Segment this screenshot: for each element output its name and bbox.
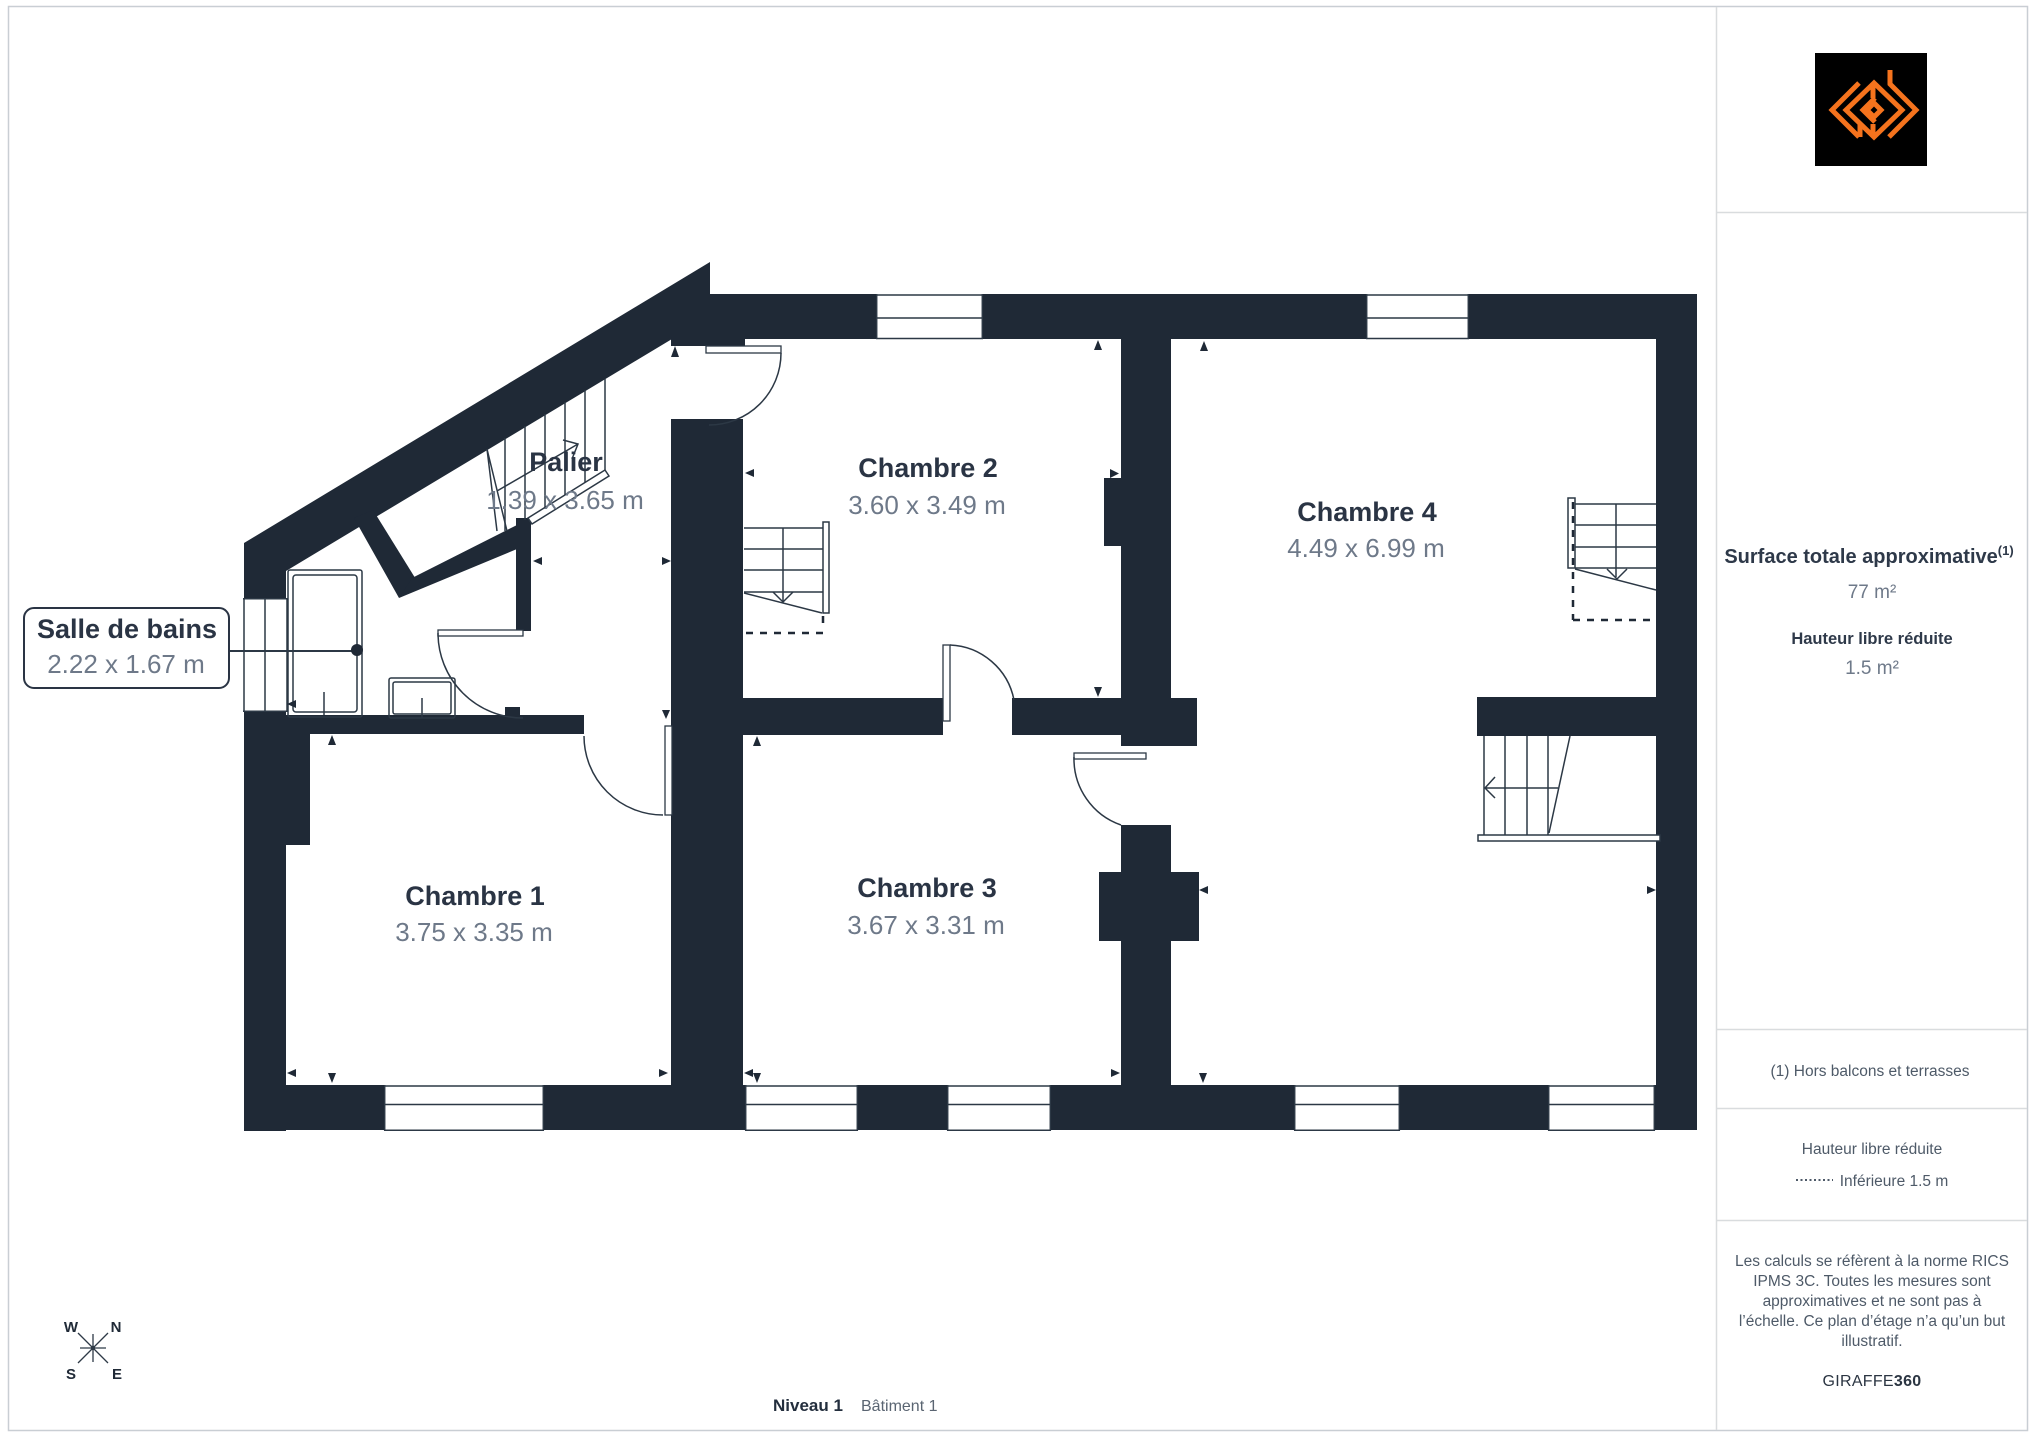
svg-text:4.49 x 6.99 m: 4.49 x 6.99 m (1287, 533, 1445, 563)
svg-text:2.22 x 1.67 m: 2.22 x 1.67 m (47, 649, 205, 679)
svg-text:3.67 x 3.31 m: 3.67 x 3.31 m (847, 910, 1005, 940)
svg-text:1.5 m²: 1.5 m² (1845, 658, 1899, 679)
svg-text:S: S (66, 1366, 76, 1383)
svg-text:Chambre 1: Chambre 1 (405, 881, 545, 911)
svg-text:(1) Hors balcons et terrasses: (1) Hors balcons et terrasses (1771, 1063, 1970, 1080)
svg-text:Les calculs se réfèrent à la n: Les calculs se réfèrent à la norme RICS (1735, 1253, 2009, 1270)
svg-text:Chambre 4: Chambre 4 (1297, 497, 1437, 527)
svg-text:3.75 x 3.35 m: 3.75 x 3.35 m (395, 917, 553, 947)
svg-text:GIRAFFE360: GIRAFFE360 (1822, 1373, 1921, 1390)
svg-text:Bâtiment 1: Bâtiment 1 (861, 1398, 938, 1415)
svg-text:Chambre 2: Chambre 2 (858, 453, 998, 483)
svg-text:Inférieure 1.5 m: Inférieure 1.5 m (1840, 1173, 1949, 1190)
svg-text:Hauteur libre réduite: Hauteur libre réduite (1802, 1141, 1942, 1158)
svg-text:Hauteur libre réduite: Hauteur libre réduite (1791, 630, 1952, 648)
svg-text:Niveau 1: Niveau 1 (773, 1396, 843, 1415)
svg-text:Surface totale approximative(1: Surface totale approximative(1) (1724, 543, 2013, 568)
svg-text:l’échelle. Ce plan d’étage n’a: l’échelle. Ce plan d’étage n’a qu’un but (1739, 1313, 2006, 1330)
svg-text:Chambre 3: Chambre 3 (857, 873, 997, 903)
svg-text:approximatives et ne sont pas: approximatives et ne sont pas à (1763, 1293, 1982, 1310)
svg-text:W: W (64, 1319, 79, 1336)
svg-text:1.39 x 3.65 m: 1.39 x 3.65 m (486, 485, 644, 515)
svg-text:IPMS 3C. Toutes les mesures so: IPMS 3C. Toutes les mesures sont (1753, 1273, 1991, 1290)
svg-text:illustratif.: illustratif. (1841, 1333, 1902, 1350)
svg-text:3.60 x 3.49 m: 3.60 x 3.49 m (848, 490, 1006, 520)
svg-text:Salle de bains: Salle de bains (37, 614, 217, 644)
svg-text:N: N (111, 1319, 122, 1336)
svg-text:Palier: Palier (529, 447, 603, 477)
svg-text:77 m²: 77 m² (1848, 582, 1897, 603)
svg-text:E: E (112, 1366, 122, 1383)
